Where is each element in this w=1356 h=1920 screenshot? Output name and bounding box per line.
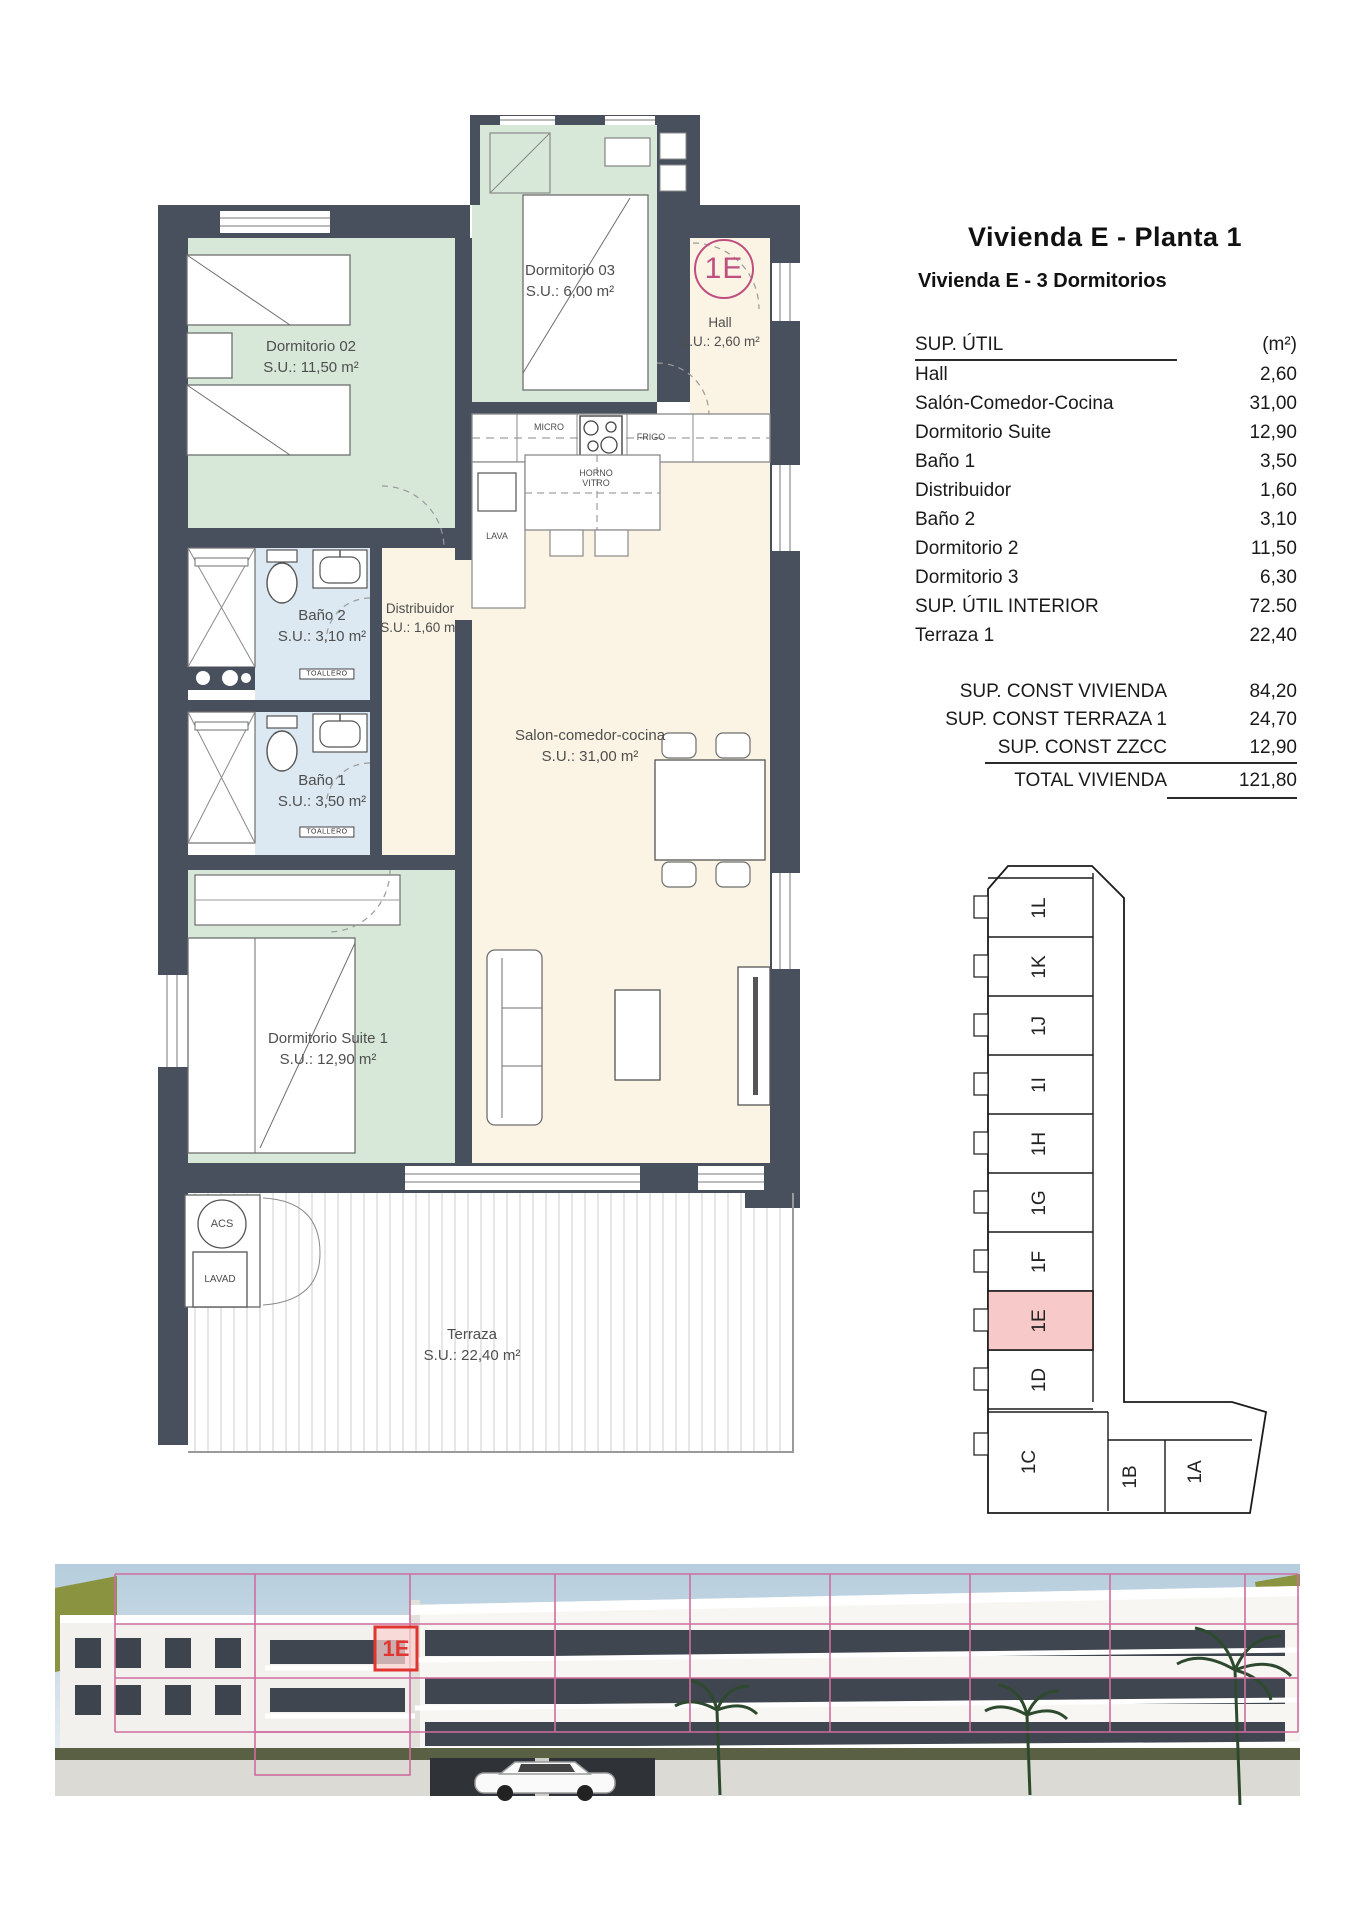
building-rendering: 1E <box>55 1560 1300 1810</box>
vitro-line: VITRO <box>579 478 613 488</box>
keyplan-unit-1C: 1C <box>1019 1450 1041 1474</box>
room-area: S.U.: 22,40 m² <box>424 1345 521 1366</box>
plan-sheet: 1E Dormitorio 02 S.U.: 11,50 m² Dormitor… <box>0 0 1356 1920</box>
summary-label: SUP. CONST TERRAZA 1 <box>945 709 1167 731</box>
horno-vitro-label: HORNO VITRO <box>579 468 613 488</box>
summary-value: 84,20 <box>1167 681 1297 703</box>
room-label-distribuidor: Distribuidor S.U.: 1,60 m² <box>380 599 460 637</box>
table-row: Dormitorio Suite12,90 <box>915 418 1297 447</box>
room-label-terraza: Terraza S.U.: 22,40 m² <box>424 1324 521 1366</box>
unit-badge-circle: 1E <box>694 239 754 299</box>
acs-label: ACS <box>211 1219 234 1229</box>
total-value: 121,80 <box>1167 770 1297 792</box>
room-area: S.U.: 12,90 m² <box>268 1049 388 1070</box>
room-area: S.U.: 2,60 m² <box>680 332 760 351</box>
row-value: 22,40 <box>1249 625 1297 647</box>
room-area: S.U.: 1,60 m² <box>380 618 460 637</box>
row-label: Salón-Comedor-Cocina <box>915 393 1114 415</box>
row-value: 72.50 <box>1249 596 1297 618</box>
summary-label: SUP. CONST VIVIENDA <box>960 681 1167 703</box>
room-name: Dormitorio 02 <box>263 336 359 357</box>
room-name: Salon-comedor-cocina <box>515 725 665 746</box>
room-label-dorm02: Dormitorio 02 S.U.: 11,50 m² <box>263 336 359 378</box>
table-row: Salón-Comedor-Cocina31,00 <box>915 389 1297 418</box>
room-area: S.U.: 3,50 m² <box>278 791 366 812</box>
row-label: SUP. ÚTIL INTERIOR <box>915 596 1099 618</box>
room-area: S.U.: 11,50 m² <box>263 357 359 378</box>
room-label-suite: Dormitorio Suite 1 S.U.: 12,90 m² <box>268 1028 388 1070</box>
total-row: TOTAL VIVIENDA 121,80 <box>915 770 1297 792</box>
table-row: Baño 13,50 <box>915 447 1297 476</box>
room-area: S.U.: 31,00 m² <box>515 746 665 767</box>
keyplan-unit-1A: 1A <box>1185 1460 1207 1483</box>
summary-label: SUP. CONST ZZCC <box>998 737 1167 759</box>
room-name: Baño 2 <box>278 605 366 626</box>
row-value: 6,30 <box>1260 567 1297 589</box>
room-name: Terraza <box>424 1324 521 1345</box>
table-row: Dormitorio 36,30 <box>915 563 1297 592</box>
summary-row: SUP. CONST TERRAZA 124,70 <box>915 706 1297 734</box>
table-row: Terraza 122,40 <box>915 621 1297 650</box>
room-name: Dormitorio 03 <box>525 260 615 281</box>
keyplan-unit-1D: 1D <box>1029 1368 1051 1392</box>
page-subtitle: Vivienda E - 3 Dormitorios <box>918 270 1167 293</box>
room-name: Hall <box>680 313 760 332</box>
header-underline <box>915 359 1177 361</box>
row-label: Dormitorio 3 <box>915 567 1018 589</box>
area-table-unit: (m²) <box>1262 334 1297 360</box>
row-label: Baño 2 <box>915 509 975 531</box>
rendering-unit-label: 1E <box>383 1636 410 1661</box>
row-label: Dormitorio 2 <box>915 538 1018 560</box>
row-value: 11,50 <box>1251 538 1297 560</box>
row-value: 12,90 <box>1249 422 1297 444</box>
keyplan-unit-1J: 1J <box>1029 1016 1051 1036</box>
row-label: Terraza 1 <box>915 625 994 647</box>
keyplan-unit-1L: 1L <box>1029 897 1051 918</box>
keyplan-unit-1H: 1H <box>1029 1132 1051 1156</box>
room-area: S.U.: 6,00 m² <box>525 281 615 302</box>
keyplan-unit-1G: 1G <box>1029 1190 1051 1215</box>
table-row: Distribuidor1,60 <box>915 476 1297 505</box>
row-label: Distribuidor <box>915 480 1011 502</box>
row-value: 3,50 <box>1260 451 1297 473</box>
row-value: 3,10 <box>1260 509 1297 531</box>
keyplan-unit-1I: 1I <box>1029 1077 1051 1093</box>
keyplan-unit-1E-highlighted: 1E <box>1029 1309 1051 1332</box>
keyplan-unit-1B: 1B <box>1120 1465 1142 1488</box>
row-value: 31,00 <box>1249 393 1297 415</box>
row-value: 2,60 <box>1260 364 1297 386</box>
row-label: Hall <box>915 364 948 386</box>
room-name: Dormitorio Suite 1 <box>268 1028 388 1049</box>
row-label: Dormitorio Suite <box>915 422 1051 444</box>
summary-row: SUP. CONST VIVIENDA84,20 <box>915 678 1297 706</box>
total-divider <box>985 762 1297 764</box>
keyplan-unit-1F: 1F <box>1029 1251 1051 1273</box>
table-row: Hall2,60 <box>915 360 1297 389</box>
table-row: Dormitorio 211,50 <box>915 534 1297 563</box>
toallero-label-bano1: TOALLERO <box>299 827 354 838</box>
area-table: SUP. ÚTIL (m²) Hall2,60 Salón-Comedor-Co… <box>915 334 1297 762</box>
table-row: SUP. ÚTIL INTERIOR72.50 <box>915 592 1297 621</box>
micro-label: MICRO <box>534 422 564 432</box>
room-name: Baño 1 <box>278 770 366 791</box>
room-label-bano2: Baño 2 S.U.: 3,10 m² <box>278 605 366 647</box>
total-label: TOTAL VIVIENDA <box>1014 770 1167 792</box>
room-label-salon: Salon-comedor-cocina S.U.: 31,00 m² <box>515 725 665 767</box>
row-label: Baño 1 <box>915 451 975 473</box>
room-label-bano1: Baño 1 S.U.: 3,50 m² <box>278 770 366 812</box>
frigo-label: FRIGO <box>637 432 666 442</box>
row-value: 1,60 <box>1260 480 1297 502</box>
horno-line: HORNO <box>579 468 613 478</box>
page-title: Vivienda E - Planta 1 <box>905 222 1305 253</box>
table-row: Baño 23,10 <box>915 505 1297 534</box>
lavad-label: LAVAD <box>204 1275 235 1285</box>
total-underline <box>1167 797 1297 799</box>
summary-row: SUP. CONST ZZCC12,90 <box>915 734 1297 762</box>
room-name: Distribuidor <box>380 599 460 618</box>
lava-label: LAVA <box>486 531 508 541</box>
summary-value: 24,70 <box>1167 709 1297 731</box>
keyplan-unit-1K: 1K <box>1029 955 1051 978</box>
summary-value: 12,90 <box>1167 737 1297 759</box>
key-plan-drawing <box>960 855 1290 1525</box>
toallero-label-bano2: TOALLERO <box>299 669 354 680</box>
room-label-dorm03: Dormitorio 03 S.U.: 6,00 m² <box>525 260 615 302</box>
room-area: S.U.: 3,10 m² <box>278 626 366 647</box>
room-label-hall: Hall S.U.: 2,60 m² <box>680 313 760 351</box>
area-table-header: SUP. ÚTIL (m²) <box>915 334 1297 360</box>
area-table-header-label: SUP. ÚTIL <box>915 334 1003 360</box>
